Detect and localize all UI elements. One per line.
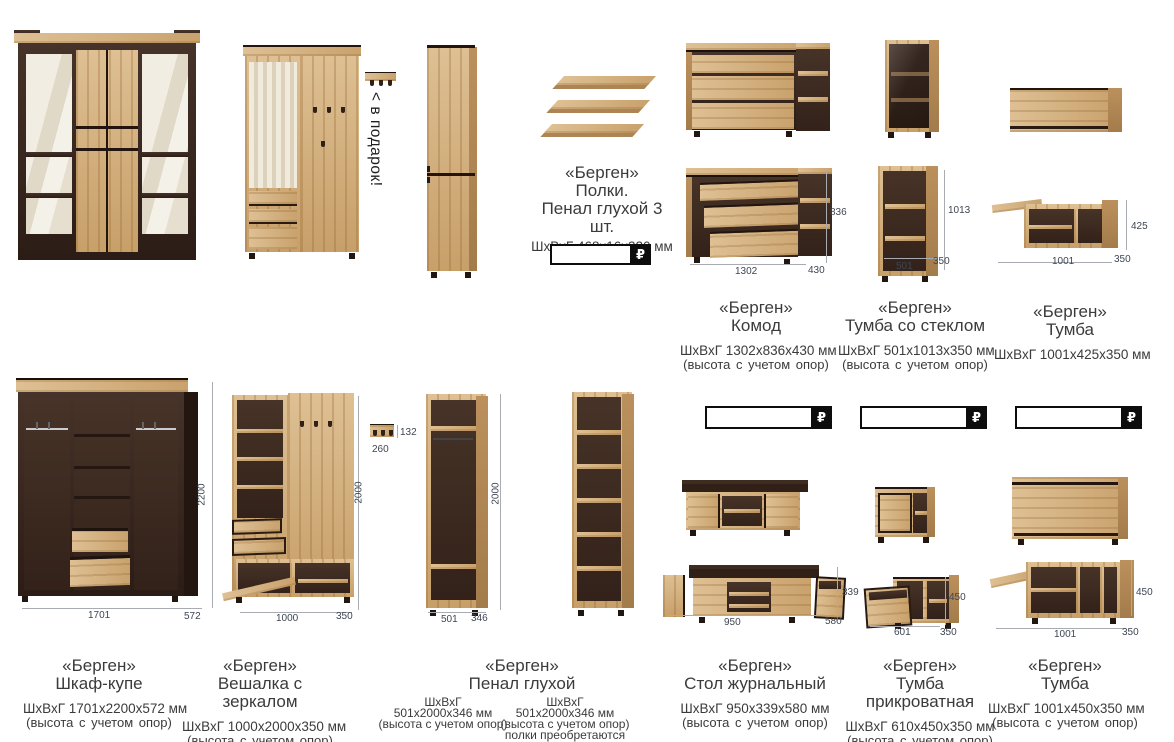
product-name: Вешалка с зеркалом xyxy=(182,675,338,711)
furniture-foot xyxy=(878,537,884,543)
komod-drawer xyxy=(692,55,794,73)
product-note: (высота с учетом опор) xyxy=(182,734,338,742)
wardrobe-closed-illustration xyxy=(12,30,202,262)
product-brand: «Берген» xyxy=(680,299,832,317)
glass-shine xyxy=(889,44,931,128)
penal-shelf xyxy=(577,566,621,571)
cabinet-side xyxy=(1108,88,1122,132)
cabinet-divider xyxy=(1100,567,1104,613)
dimension-line xyxy=(837,567,838,621)
penal-shelf xyxy=(577,464,621,469)
cabinet-lid-gap xyxy=(1012,482,1128,485)
furniture-foot xyxy=(349,253,355,259)
low-cabinet-closed-illustration xyxy=(1012,477,1136,545)
furniture-foot xyxy=(888,132,894,138)
komod-drawer xyxy=(692,76,794,100)
dim-height: 425 xyxy=(1131,221,1148,232)
low-cabinet-label: «Берген» Тумба ШхВхГ 1001х450х350 мм (вы… xyxy=(988,657,1142,729)
product-brand: «Берген» xyxy=(437,657,607,675)
cabinet-side xyxy=(929,40,939,132)
furniture-foot xyxy=(1018,539,1024,545)
wall-cabinet-open-illustration xyxy=(992,198,1130,252)
furniture-foot xyxy=(1112,539,1118,545)
wardrobe-drawer-gap xyxy=(76,126,138,129)
wardrobe-shelf xyxy=(74,496,130,499)
cabinet-gap xyxy=(1010,126,1116,129)
product-brand: «Берген» xyxy=(842,657,998,675)
hallway-shelf xyxy=(237,429,283,433)
furniture-foot xyxy=(430,610,436,616)
hanging-rod xyxy=(433,438,473,440)
product-note: (высота с учетом опор) xyxy=(680,358,832,371)
furniture-foot xyxy=(882,276,888,282)
komod-drawer xyxy=(692,103,794,129)
dim-depth: 580 xyxy=(825,616,842,627)
penal-top-edge xyxy=(427,45,475,48)
komod-side-shelves xyxy=(796,47,830,131)
side-shelf xyxy=(798,97,828,102)
coat-hook-icon xyxy=(388,80,392,86)
cabinet-drawer xyxy=(878,493,912,533)
dim-width: 1001 xyxy=(1052,256,1074,267)
product-note: (высота с учетом опор) xyxy=(23,716,175,729)
dim-depth: 350 xyxy=(336,611,353,622)
ruble-badge: ₽ xyxy=(811,406,832,429)
dim-height: 2200 xyxy=(197,477,208,513)
coat-hook-icon xyxy=(381,430,385,436)
dim-width: 260 xyxy=(372,444,389,455)
dim-width: 1701 xyxy=(88,610,110,621)
dim-width: 501 xyxy=(441,614,458,625)
penal-side xyxy=(476,396,488,608)
ruble-badge: ₽ xyxy=(630,244,651,265)
komod-left-edge xyxy=(686,177,692,257)
wardrobe-drawer-gap xyxy=(76,148,138,151)
hanger-hook-icon xyxy=(48,422,50,429)
hallway-closed-illustration xyxy=(243,45,363,262)
cabinet-side xyxy=(1118,477,1128,539)
shelves-label: «Берген» Полки. Пенал глухой 3 шт. ШхВхГ… xyxy=(528,164,676,254)
coat-hook-icon xyxy=(327,107,331,113)
komod-closed-illustration xyxy=(686,43,832,143)
dim-height: 450 xyxy=(1136,587,1153,598)
hanger-hook-icon xyxy=(454,440,456,446)
niche-shelf xyxy=(729,604,769,608)
furniture-foot xyxy=(925,132,931,138)
product-brand: «Берген» xyxy=(838,299,992,317)
coat-hook-icon xyxy=(328,421,332,427)
gift-hanger-dimensioned xyxy=(370,424,400,446)
dimension-line xyxy=(22,608,202,609)
table-door xyxy=(688,494,720,528)
wardrobe-shelf xyxy=(74,434,130,437)
penal-shelf xyxy=(577,430,621,435)
coat-hook-icon xyxy=(379,80,383,86)
product-name: Комод xyxy=(680,317,832,335)
product-note: (высота с учетом опор) xyxy=(988,716,1142,729)
catalog-page: < в подарок! «Берген» Полки. Пенал глухо… xyxy=(0,0,1174,742)
wardrobe-drawer xyxy=(72,528,128,552)
dims-line: (высота с учетом опор) xyxy=(375,719,511,730)
hallway-drawer-open xyxy=(232,518,282,535)
coat-hook-icon xyxy=(370,80,374,86)
wardrobe-open-illustration xyxy=(16,378,206,610)
cabinet-shelf xyxy=(1029,225,1072,229)
product-name: Тумба xyxy=(988,675,1142,693)
komod-label: «Берген» Комод ШхВхГ 1302х836х430 мм (вы… xyxy=(680,299,832,371)
table-door-open xyxy=(663,575,685,617)
product-dims: ШхВхГ 1000х2000х350 мм xyxy=(182,720,338,734)
dim-width: 1001 xyxy=(1054,629,1076,640)
hallway-drawer xyxy=(249,191,297,206)
dims-line: полки преобретаются xyxy=(497,730,633,741)
price-field[interactable]: ₽ xyxy=(860,406,987,429)
furniture-foot xyxy=(1110,618,1116,624)
product-name: Тумба со стеклом xyxy=(838,317,992,335)
shelves-illustration xyxy=(546,72,656,152)
penal-side xyxy=(622,394,634,608)
bedside-open-illustration xyxy=(865,575,965,631)
dim-height: 1013 xyxy=(948,205,970,216)
wardrobe-label: «Берген» Шкаф-купе ШхВхГ 1701х2200х572 м… xyxy=(23,657,175,729)
dim-height: 2000 xyxy=(354,478,365,508)
niche-shelf xyxy=(724,509,760,513)
hanger-hook-icon xyxy=(36,422,38,429)
glass-cabinet-closed-illustration xyxy=(885,40,943,140)
furniture-foot xyxy=(236,597,242,603)
penal-open-shelves-illustration xyxy=(570,392,644,618)
cabinet-divider xyxy=(1074,209,1078,243)
komod-drawer-open xyxy=(700,179,804,201)
furniture-foot xyxy=(618,610,624,616)
hallway-cornice xyxy=(243,47,361,56)
dimension-line xyxy=(690,264,806,265)
cabinet-shelf xyxy=(885,204,925,209)
wardrobe-shelf xyxy=(74,466,130,469)
product-dims: ШхВхГ 1302х836х430 мм xyxy=(680,344,832,358)
product-brand: «Берген» xyxy=(994,303,1146,321)
komod-top xyxy=(686,168,812,177)
gift-label: < в подарок! xyxy=(366,92,384,217)
dim-width: 1000 xyxy=(276,613,298,624)
hallway-drawer-open xyxy=(232,537,286,556)
furniture-foot xyxy=(694,131,700,137)
penal-dims-right: ШхВхГ 501х2000х346 мм (высота с учетом о… xyxy=(497,697,633,741)
furniture-foot xyxy=(249,253,255,259)
coffee-table-closed-illustration xyxy=(680,480,816,540)
penal-shelf xyxy=(431,564,477,569)
cabinet-side xyxy=(927,487,935,537)
furniture-foot xyxy=(922,276,928,282)
product-dims: ШхВхГ 950х339х580 мм xyxy=(679,702,831,716)
product-dims: ШхВхГ 501х1013х350 мм xyxy=(838,344,992,358)
coat-hook-icon xyxy=(300,421,304,427)
shelf-panel xyxy=(550,100,650,109)
penal-shelf xyxy=(431,426,477,431)
dim-depth: 350 xyxy=(933,256,950,267)
dim-height: 2000 xyxy=(491,479,502,509)
ruble-badge: ₽ xyxy=(966,406,987,429)
komod-open-illustration xyxy=(686,168,836,268)
product-note: (высота с учетом опор) xyxy=(679,716,831,729)
cabinet-divider xyxy=(1076,567,1080,613)
gift-hanger-illustration xyxy=(365,70,399,88)
product-brand: «Берген» xyxy=(988,657,1142,675)
hallway-shelf xyxy=(237,457,283,461)
wardrobe-mirror-rail xyxy=(26,152,72,157)
dimension-line xyxy=(945,577,946,625)
furniture-foot xyxy=(22,596,28,602)
dim-depth: 350 xyxy=(940,627,957,638)
wardrobe-mirror-rail xyxy=(142,193,188,198)
furniture-foot xyxy=(789,617,795,623)
dimension-line xyxy=(944,170,945,270)
komod-side-top xyxy=(796,43,830,49)
furniture-foot xyxy=(786,131,792,137)
product-name: Пенал глухой xyxy=(437,675,607,693)
product-name: Тумба прикроватная xyxy=(842,675,998,711)
dimension-line xyxy=(1126,200,1127,250)
dim-depth: 346 xyxy=(471,613,488,624)
product-name: Шкаф-купе xyxy=(23,675,175,693)
hallway-hook-panel xyxy=(301,56,359,252)
product-name: Полки. xyxy=(528,182,676,200)
dim-width: 501 xyxy=(896,261,913,272)
bedside-closed-illustration xyxy=(875,487,939,543)
furniture-foot xyxy=(344,597,350,603)
wardrobe-drawer-open xyxy=(70,555,130,587)
wardrobe-section-right xyxy=(134,398,178,590)
glass-cabinet-label: «Берген» Тумба со стеклом ШхВхГ 501х1013… xyxy=(838,299,992,371)
cabinet-gap xyxy=(1014,533,1118,536)
penal-door-gap xyxy=(427,173,475,176)
dim-height: 450 xyxy=(949,592,966,603)
furniture-foot xyxy=(431,272,437,278)
dimension-line xyxy=(397,425,398,438)
cabinet-interior xyxy=(883,171,927,271)
furniture-foot xyxy=(694,257,700,263)
coat-hook-icon xyxy=(373,430,377,436)
furniture-foot xyxy=(923,537,929,543)
dimension-line xyxy=(884,258,938,259)
furniture-foot xyxy=(699,617,705,623)
dimension-line xyxy=(668,615,820,616)
dim-height: 132 xyxy=(400,427,417,438)
wardrobe-center-split xyxy=(106,50,108,252)
furniture-foot xyxy=(690,530,696,536)
wardrobe-mirror-rail xyxy=(26,193,72,198)
dim-height: 339 xyxy=(842,587,859,598)
penal-closed-illustration xyxy=(427,45,481,278)
cabinet-shelf xyxy=(1031,588,1076,592)
dim-width: 1302 xyxy=(735,266,757,277)
furniture-foot xyxy=(784,530,790,536)
shelf-panel xyxy=(556,76,656,85)
product-dims: ШхВхГ 1001х450х350 мм xyxy=(988,702,1142,716)
dimension-line xyxy=(1131,560,1132,616)
coat-hook-icon xyxy=(389,430,393,436)
side-shelf xyxy=(915,511,927,515)
table-top-face xyxy=(682,480,808,484)
penal-body xyxy=(427,47,475,271)
coat-hook-icon xyxy=(313,107,317,113)
product-dims: ШхВхГ 1701х2200х572 мм xyxy=(23,702,175,716)
dim-depth: 350 xyxy=(1114,254,1131,265)
hallway-mirror xyxy=(249,62,297,188)
cabinet-body xyxy=(1012,477,1128,539)
coat-hook-icon xyxy=(341,107,345,113)
penal-shelf xyxy=(577,498,621,503)
wardrobe-cornice xyxy=(16,380,188,392)
dimension-line xyxy=(826,171,827,263)
product-note: (высота с учетом опор) xyxy=(838,358,992,371)
table-top-face xyxy=(689,565,819,569)
furniture-foot xyxy=(1032,618,1038,624)
shelf-panel xyxy=(544,124,644,133)
wardrobe-cornice xyxy=(14,33,200,43)
wardrobe-mirror-door-right xyxy=(142,54,188,234)
penal-label-title: «Берген» Пенал глухой xyxy=(437,657,607,693)
hanger-hook-icon xyxy=(142,422,144,429)
hallway-open-illustration xyxy=(232,393,362,617)
penal-side xyxy=(469,47,477,271)
door-handle xyxy=(427,166,430,172)
cabinet-divider xyxy=(923,581,927,619)
price-field[interactable]: ₽ xyxy=(1015,406,1142,429)
wall-cabinet-closed-illustration xyxy=(1010,88,1128,136)
product-dims: ШхВхГ 610х450х350 мм xyxy=(842,720,998,734)
hallway-drawer xyxy=(249,209,297,224)
dim-depth: 350 xyxy=(1122,627,1139,638)
coffee-table-label: «Берген» Стол журнальный ШхВхГ 950х339х5… xyxy=(679,657,831,729)
price-field[interactable]: ₽ xyxy=(705,406,832,429)
wardrobe-mirror-door-left xyxy=(26,54,72,234)
penal-dims-left: ШхВхГ 501х2000х346 мм (высота с учетом о… xyxy=(375,697,511,730)
coat-hook-icon xyxy=(314,421,318,427)
product-name: Стол журнальный xyxy=(679,675,831,693)
product-brand: «Берген» xyxy=(528,164,676,182)
dim-width: 601 xyxy=(894,627,911,638)
komod-drawer-open xyxy=(704,202,808,228)
komod-top xyxy=(686,43,810,52)
hanger-hook-icon xyxy=(442,440,444,446)
side-shelf xyxy=(798,71,828,76)
dim-height: 836 xyxy=(830,207,847,218)
bench-shelf xyxy=(298,579,348,583)
wardrobe-mirror-rail xyxy=(142,152,188,157)
penal-shelf xyxy=(577,532,621,537)
product-name: Тумба xyxy=(994,321,1146,339)
wardrobe-section-left xyxy=(24,398,70,590)
coffee-table-open-illustration xyxy=(663,565,847,627)
furniture-foot xyxy=(578,610,584,616)
ruble-badge: ₽ xyxy=(1121,406,1142,429)
coat-hook-icon xyxy=(321,141,325,147)
product-dims: ШхВхГ 1001х425х350 мм xyxy=(994,348,1146,362)
furniture-foot xyxy=(465,272,471,278)
product-name: Пенал глухой 3 шт. xyxy=(528,200,676,236)
hallway-shelf xyxy=(237,485,283,489)
product-brand: «Берген» xyxy=(182,657,338,675)
low-cabinet-open-illustration xyxy=(990,558,1150,638)
cabinet-shelf xyxy=(885,236,925,241)
hanging-rod xyxy=(26,428,68,430)
bedside-label: «Берген» Тумба прикроватная ШхВхГ 610х45… xyxy=(842,657,998,742)
hanger-hook-icon xyxy=(154,422,156,429)
product-brand: «Берген» xyxy=(679,657,831,675)
dim-depth: 430 xyxy=(808,265,825,276)
price-field[interactable]: ₽ xyxy=(550,244,651,265)
product-brand: «Берген» xyxy=(23,657,175,675)
door-handle xyxy=(427,177,430,183)
hallway-flap-door xyxy=(249,227,297,249)
dimension-line xyxy=(212,382,213,608)
furniture-foot xyxy=(172,596,178,602)
niche-shelf xyxy=(729,592,769,596)
hallway-label: «Берген» Вешалка с зеркалом ШхВхГ 1000х2… xyxy=(182,657,338,742)
cabinet-side xyxy=(1102,200,1118,248)
dim-width: 950 xyxy=(724,617,741,628)
table-door xyxy=(764,494,798,528)
wall-cabinet-label: «Берген» Тумба ШхВхГ 1001х425х350 мм xyxy=(994,303,1146,362)
product-note: (высота с учетом опор) xyxy=(842,734,998,742)
dim-depth: 572 xyxy=(184,611,201,622)
